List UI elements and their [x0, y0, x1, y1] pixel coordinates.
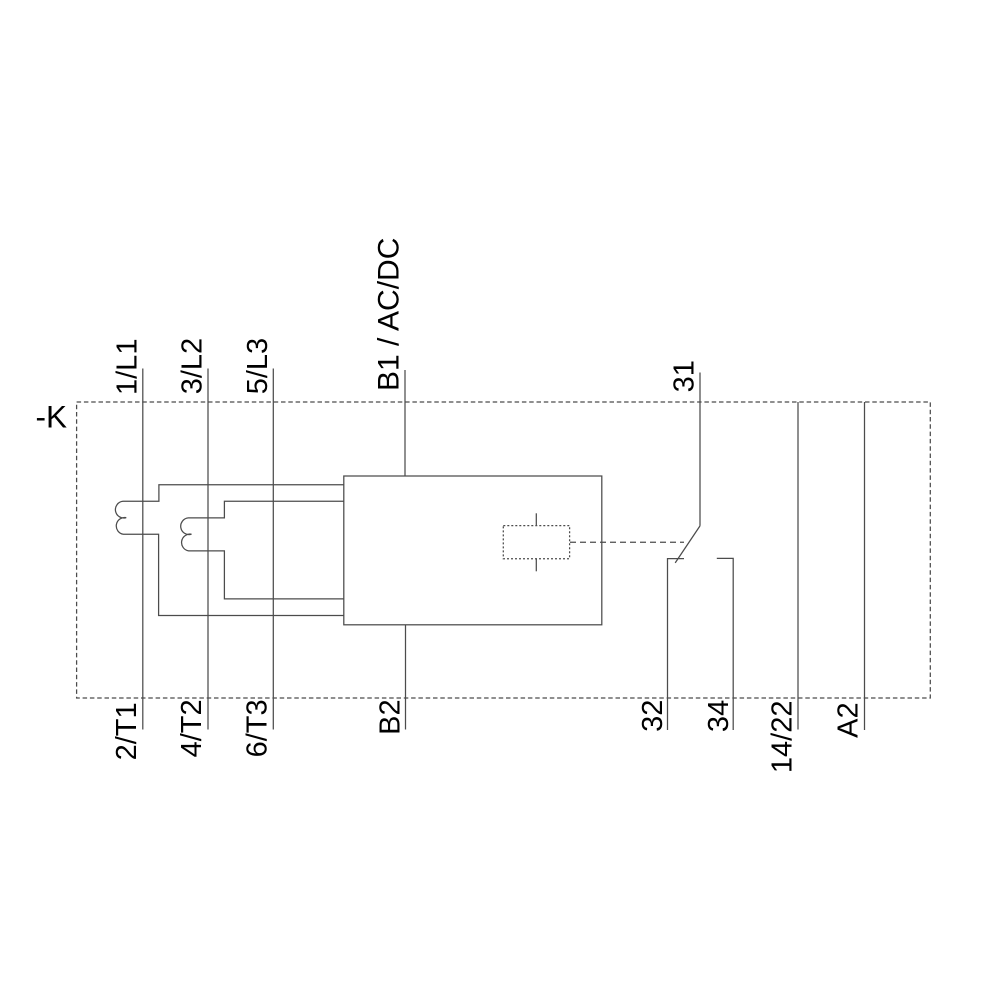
svg-text:34: 34 [703, 700, 735, 732]
svg-text:B1 / AC/DC: B1 / AC/DC [373, 238, 406, 391]
svg-text:32: 32 [637, 700, 669, 732]
svg-text:31: 31 [669, 360, 701, 392]
svg-text:6/T3: 6/T3 [242, 699, 274, 757]
svg-text:A2: A2 [833, 702, 865, 737]
svg-text:B2: B2 [375, 699, 407, 734]
svg-text:1/L1: 1/L1 [112, 339, 144, 395]
svg-text:2/T1: 2/T1 [111, 702, 143, 760]
svg-text:-K: -K [36, 399, 68, 435]
svg-text:3/L2: 3/L2 [177, 338, 209, 394]
svg-text:4/T2: 4/T2 [176, 699, 208, 757]
svg-text:5/L3: 5/L3 [242, 338, 274, 394]
svg-text:14/22: 14/22 [767, 701, 799, 774]
